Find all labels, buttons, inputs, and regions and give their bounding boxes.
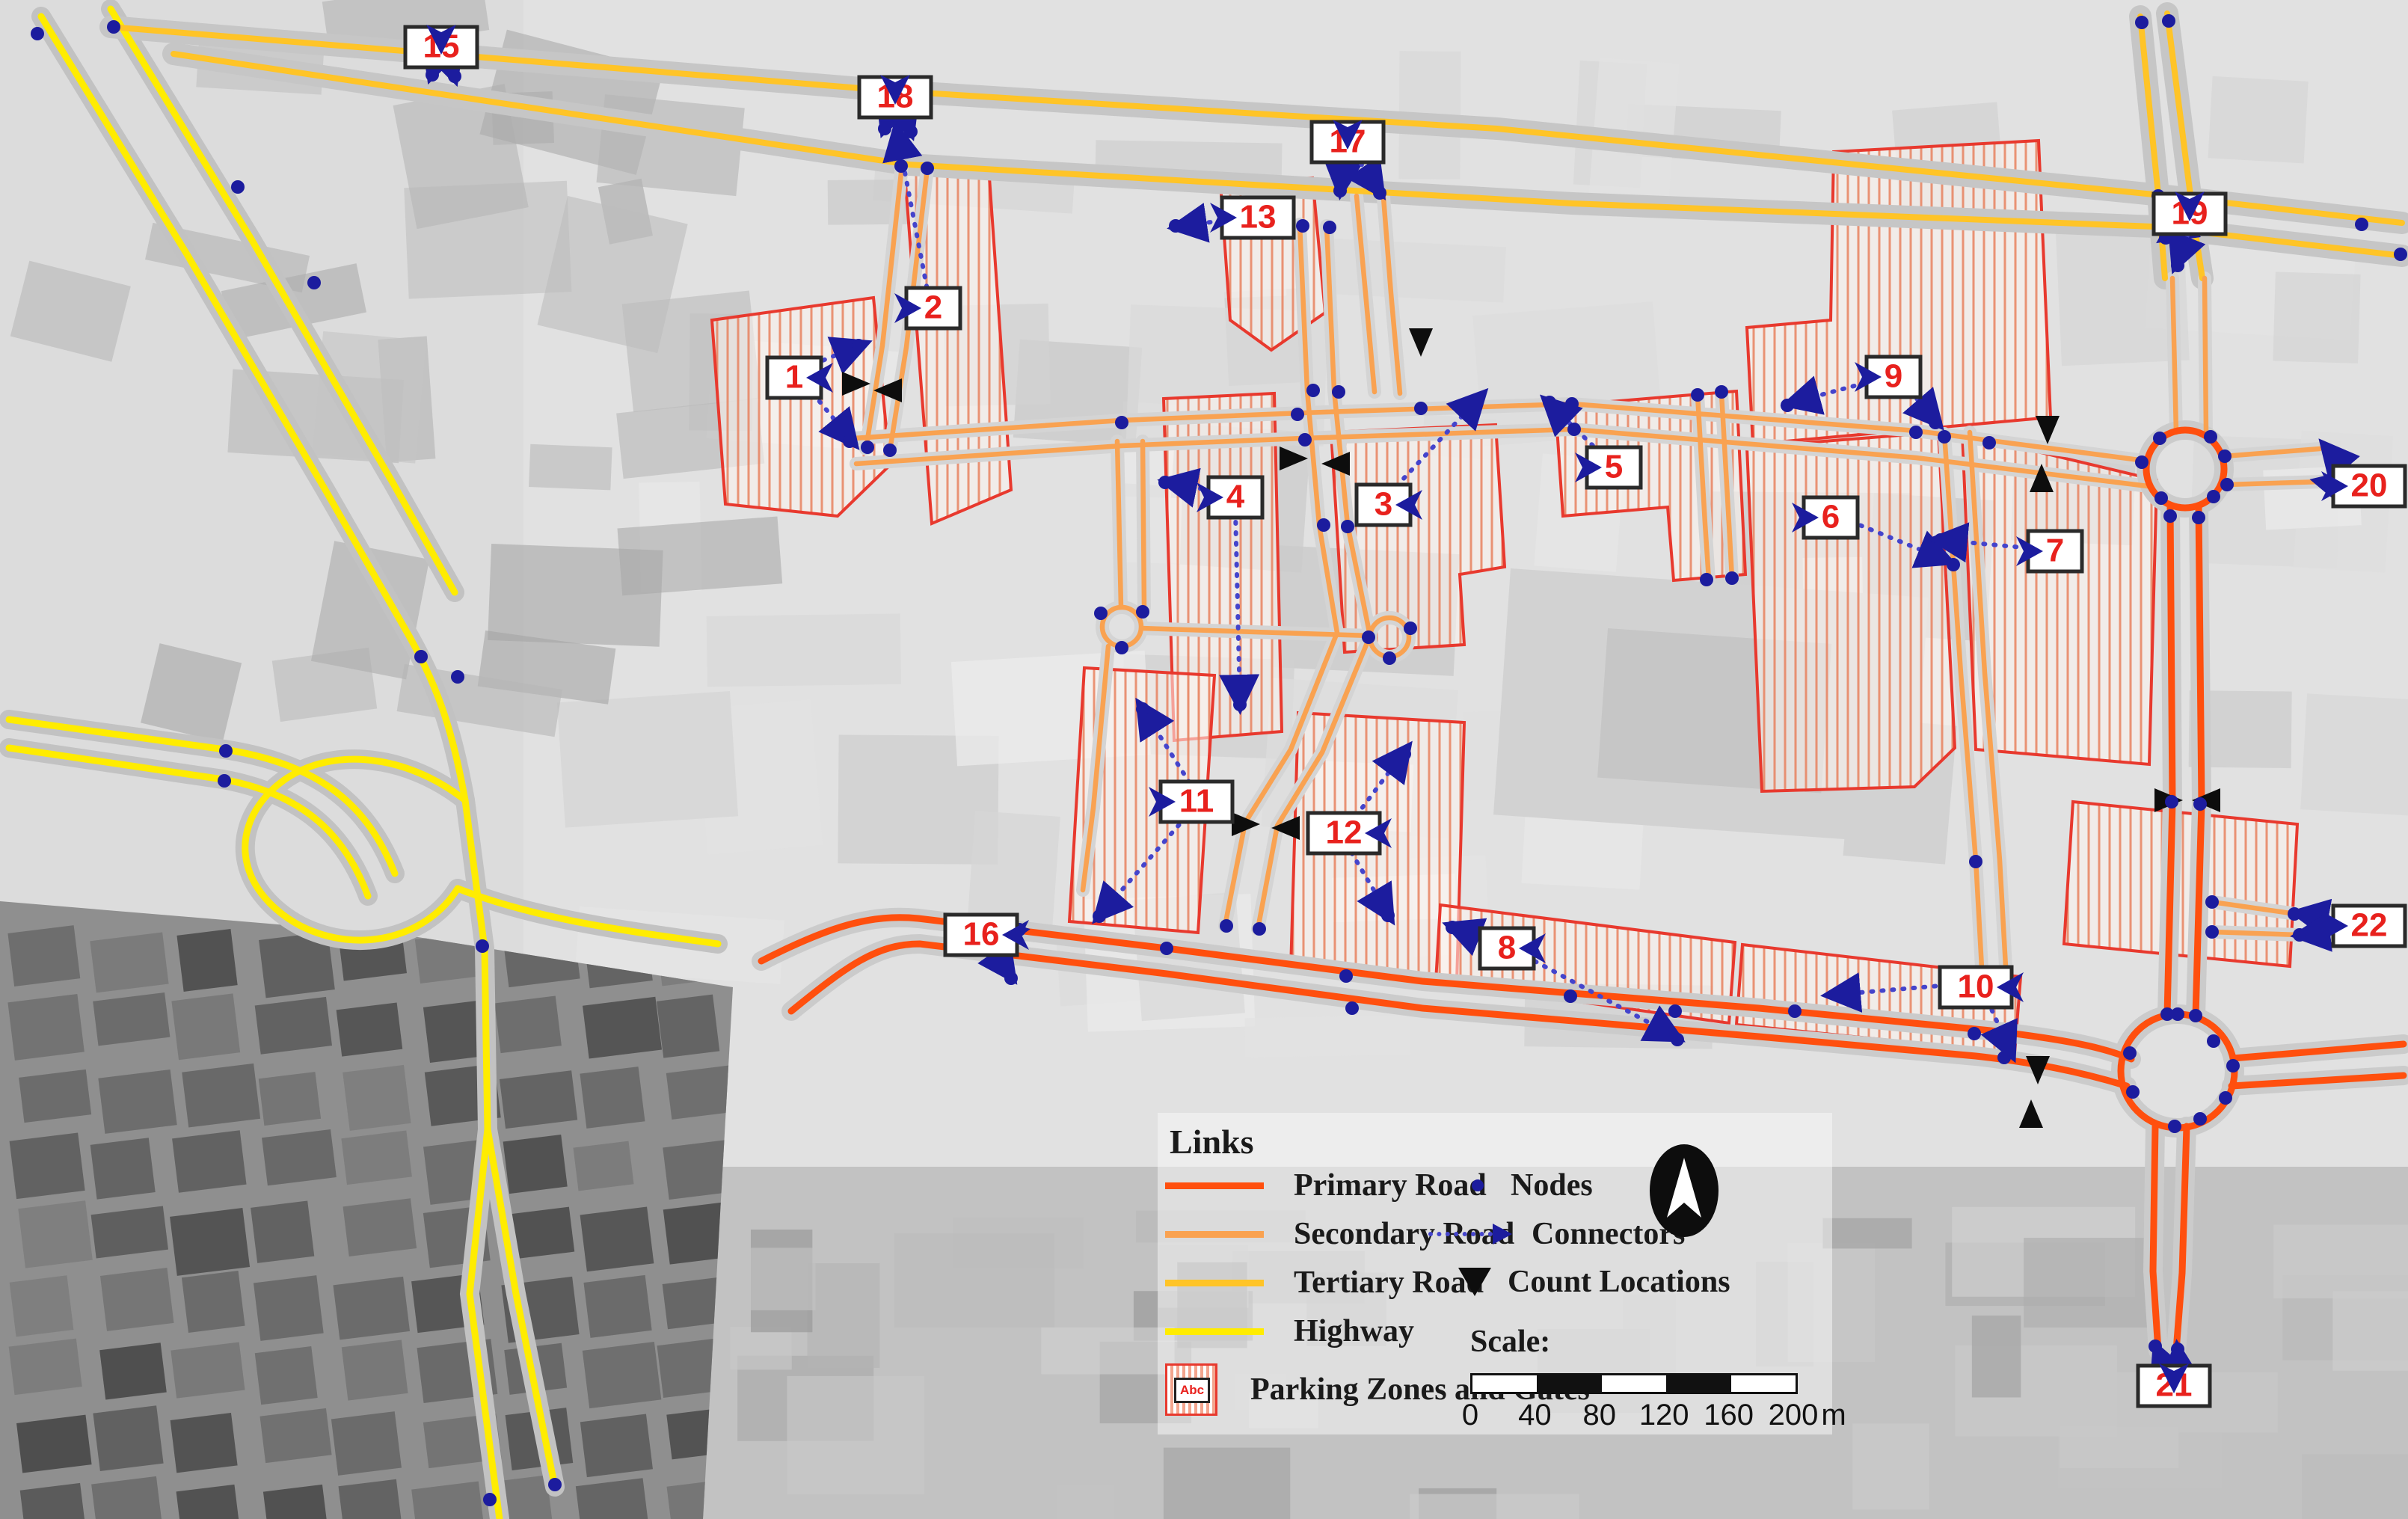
node (2207, 490, 2220, 503)
zone-gate-number: 11 (1179, 783, 1214, 820)
node (1938, 430, 1951, 444)
node (2205, 895, 2219, 909)
node (1094, 607, 1108, 620)
node (451, 670, 464, 684)
zone-gate-label[interactable]: 16 (945, 915, 1029, 955)
node (1947, 558, 1960, 571)
node (1362, 630, 1375, 644)
zone-gate-number: 3 (1375, 486, 1392, 523)
node (2189, 1009, 2202, 1022)
zone-gate-number: 9 (1885, 358, 1902, 395)
legend-item-connectors: Connectors (1428, 1215, 1685, 1253)
node (1446, 921, 1459, 934)
node (1233, 698, 1247, 711)
node (1339, 969, 1353, 983)
node (1296, 219, 1309, 233)
node (2293, 928, 2306, 942)
node (2220, 478, 2234, 491)
secondary-road (1143, 441, 1144, 607)
node (1115, 416, 1128, 429)
node (2192, 511, 2205, 524)
node (2162, 14, 2175, 28)
node (1788, 1004, 1802, 1018)
scale-ticks: m 04080120160200 (1470, 1399, 1844, 1436)
node (219, 744, 233, 758)
node (921, 162, 934, 175)
tertiary-road-swatch (1165, 1280, 1264, 1286)
node (1333, 184, 1347, 197)
node (1691, 388, 1704, 402)
parking-zone-abc-label: Abc (1174, 1378, 1210, 1403)
zone-gate-label[interactable]: 21 (2138, 1363, 2210, 1406)
zone-gate-number: 5 (1605, 449, 1623, 485)
node (2154, 491, 2168, 505)
node (218, 774, 231, 788)
node (1373, 186, 1386, 200)
node (2168, 1120, 2181, 1133)
node (1341, 520, 1354, 533)
node (1169, 219, 1182, 233)
zone-gate-number: 4 (1226, 479, 1245, 515)
node (1115, 641, 1128, 654)
count-location-icon (1458, 1268, 1491, 1296)
node (2171, 259, 2184, 272)
node (2193, 1112, 2207, 1126)
node (1317, 518, 1330, 532)
parking-zone-icon: Abc (1165, 1363, 1217, 1416)
node (2163, 509, 2177, 523)
node-icon (1472, 1179, 1484, 1191)
node (843, 435, 856, 448)
scale-tick: 160 (1704, 1399, 1754, 1432)
zone-gate-number: 13 (1240, 199, 1277, 236)
node (894, 159, 908, 173)
legend-item-tertiary-road: Tertiary Road (1165, 1264, 1484, 1301)
node (1968, 1027, 1981, 1040)
secondary-road-swatch (1165, 1231, 1264, 1238)
zone-gate-label[interactable]: 17 (1312, 120, 1383, 162)
scale-tick: 120 (1639, 1399, 1689, 1432)
node (861, 441, 874, 454)
node (883, 444, 897, 457)
zone-gate-label[interactable]: 13 (1210, 197, 1294, 238)
zone-gate-label[interactable]: 22 (2321, 906, 2405, 946)
node (2171, 1007, 2184, 1021)
scale-tick: 40 (1518, 1399, 1552, 1432)
node (1381, 909, 1395, 922)
node (1671, 1033, 1684, 1046)
node (31, 27, 44, 40)
zone-gate-label[interactable]: 19 (2154, 191, 2226, 234)
legend-item-count-locations: Count Locations (1457, 1261, 1730, 1303)
zone-gate-number: 10 (1958, 969, 1994, 1005)
node (426, 68, 439, 82)
node (2171, 1342, 2184, 1356)
legend-links-title: Links (1170, 1122, 1254, 1162)
zone-gate-label[interactable]: 20 (2321, 466, 2405, 506)
scale-segment (1602, 1375, 1666, 1392)
node (231, 180, 245, 194)
nodes-label: Nodes (1511, 1167, 1593, 1203)
legend-item-nodes: Nodes (1463, 1167, 1593, 1204)
node (1725, 571, 1739, 585)
count-locations-label: Count Locations (1508, 1264, 1730, 1300)
node (2288, 907, 2301, 921)
zone-gate-number: 6 (1822, 499, 1840, 536)
node (2193, 797, 2207, 811)
node (1398, 747, 1411, 761)
node (1414, 402, 1428, 415)
node (1323, 221, 1336, 234)
zone-gate-number: 16 (963, 916, 1000, 953)
node (2205, 925, 2219, 939)
node (2355, 218, 2368, 231)
node (1158, 476, 1172, 489)
node (1220, 919, 1233, 933)
parking-zone (712, 298, 890, 516)
node (1004, 972, 1018, 985)
connector-icon (1428, 1224, 1512, 1245)
node (1136, 605, 1149, 619)
node (2226, 1059, 2240, 1072)
secondary-road (2226, 482, 2323, 485)
zone-gate-label[interactable]: 15 (405, 25, 477, 67)
node (1564, 989, 1577, 1003)
node (2149, 1340, 2162, 1353)
node (483, 1493, 497, 1506)
node (1383, 651, 1396, 665)
zone-gate-number: 8 (1498, 930, 1516, 966)
scale-segment (1731, 1375, 1796, 1392)
node (1982, 436, 1996, 449)
node (307, 276, 321, 289)
node (1306, 384, 1320, 397)
zone-gate-number: 7 (2046, 533, 2064, 569)
zone-gate-number: 2 (924, 289, 942, 326)
node (2123, 1046, 2137, 1060)
scale-tick: 0 (1462, 1399, 1478, 1432)
node (1298, 433, 1312, 447)
parking-zone (1747, 432, 1955, 791)
node (904, 125, 918, 138)
connector-arrow-icon (1493, 1224, 1512, 1245)
node (2218, 449, 2232, 463)
node (1715, 385, 1728, 399)
node (1700, 573, 1713, 586)
node (476, 939, 489, 953)
node (1934, 533, 1947, 547)
node (878, 122, 891, 135)
map-figure: 123456789101112131516171819202122 Links … (0, 0, 2408, 1519)
node (548, 1478, 562, 1491)
zone-gate-number: 20 (2351, 467, 2388, 504)
node (448, 70, 461, 83)
scale-segment (1666, 1375, 1730, 1392)
zone-gate-label[interactable]: 11 (1149, 782, 1232, 822)
highway-swatch (1165, 1328, 1264, 1335)
scale-segment (1537, 1375, 1601, 1392)
node (1160, 942, 1173, 955)
connector-dots-icon (1428, 1232, 1493, 1236)
node (1345, 1001, 1359, 1015)
zone-gate-label[interactable]: 18 (859, 75, 931, 117)
legend-item-highway: Highway (1165, 1313, 1414, 1350)
secondary-road (2205, 278, 2206, 432)
node (1565, 397, 1579, 411)
node (2135, 16, 2149, 29)
node (2219, 1091, 2232, 1105)
scale-title: Scale: (1470, 1324, 1844, 1360)
node (107, 20, 120, 34)
node (1929, 416, 1942, 429)
node (1668, 1004, 1682, 1018)
secondary-road (2212, 932, 2299, 935)
node (1781, 399, 1794, 412)
zone-gate-label[interactable]: 10 (1940, 967, 2024, 1007)
zone-gate-number: 1 (785, 359, 803, 396)
node (1136, 702, 1149, 716)
node (2126, 1085, 2140, 1099)
primary-road-label: Primary Road (1294, 1167, 1487, 1203)
zone-gate-number: 12 (1326, 814, 1363, 851)
highway-label: Highway (1294, 1313, 1414, 1349)
node (1253, 922, 1266, 936)
node (1093, 909, 1106, 923)
node (2204, 430, 2217, 444)
zone-gate-label[interactable]: 12 (1308, 813, 1392, 853)
node (1291, 408, 1304, 421)
node (1567, 423, 1581, 436)
scale-tick: 80 (1583, 1399, 1617, 1432)
node (1332, 385, 1345, 399)
north-arrow-icon (1648, 1143, 1720, 1239)
node (414, 650, 428, 663)
node (2207, 1034, 2220, 1048)
node (1909, 426, 1923, 439)
legend: Links Primary Road Secondary Road Tertia… (1158, 1113, 1832, 1434)
scale-block: Scale: m 04080120160200 (1470, 1324, 1844, 1436)
node (1969, 855, 1982, 868)
scale-bar (1470, 1373, 1798, 1394)
node (2165, 795, 2178, 808)
scale-segment (1472, 1375, 1537, 1392)
scale-tick: 200 (1769, 1399, 1819, 1432)
node (1404, 622, 1417, 635)
node (1997, 1051, 2011, 1064)
legend-item-primary-road: Primary Road (1165, 1167, 1487, 1204)
node (2394, 248, 2407, 261)
node (2153, 432, 2166, 445)
scale-unit: m (1821, 1399, 1846, 1432)
zone-gate-number: 22 (2351, 907, 2388, 944)
primary-road-swatch (1165, 1182, 1264, 1189)
node (2135, 455, 2149, 469)
node (1543, 396, 1556, 409)
tertiary-road-label: Tertiary Road (1294, 1265, 1484, 1301)
node (852, 339, 865, 352)
